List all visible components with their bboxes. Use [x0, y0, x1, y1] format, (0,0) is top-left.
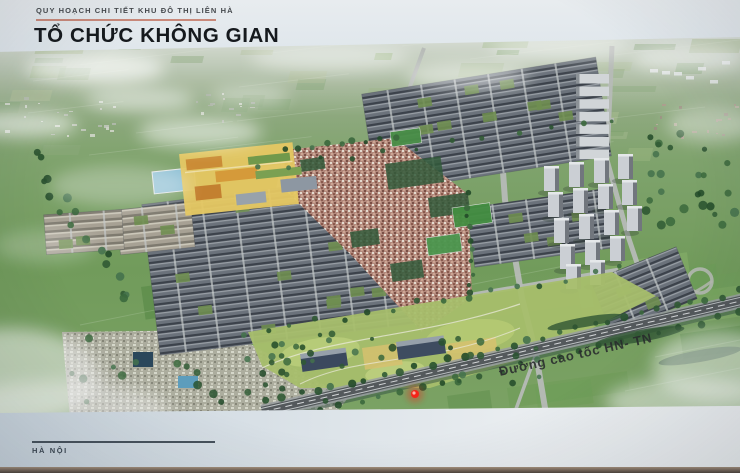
highrise-cluster-item — [576, 124, 580, 133]
distant-settlements-item — [250, 107, 255, 108]
highrise-cluster-item — [576, 137, 609, 147]
tree-scatter-item — [350, 156, 355, 161]
field-patchwork-item — [170, 56, 204, 63]
tree-scatter-item — [364, 140, 368, 144]
highrise-cluster-item — [590, 214, 594, 239]
tree-scatter-item — [477, 352, 484, 359]
tree-scatter-item — [45, 193, 53, 201]
tree-scatter-item — [193, 381, 202, 390]
highrise-cluster-item — [576, 74, 580, 84]
highrise-cluster-item — [576, 150, 580, 160]
highrise-cluster-item — [560, 244, 575, 247]
highrise-cluster-item — [604, 210, 619, 213]
tree-scatter-item — [450, 138, 455, 143]
tree-scatter-item — [549, 125, 553, 129]
highrise-cluster-item — [569, 162, 580, 187]
industrial-grid-item — [160, 225, 175, 235]
tree-scatter-item — [648, 170, 655, 177]
tree-scatter-item — [467, 283, 471, 287]
distant-settlements-item — [735, 106, 739, 108]
highrise-cluster-item — [555, 166, 559, 191]
industrial-grid — [116, 202, 195, 255]
cloud-haze-item — [25, 53, 165, 83]
tree-scatter-item — [724, 160, 730, 166]
cloud-haze-item — [633, 45, 740, 71]
tree-scatter-item — [72, 208, 79, 215]
highrise-cluster-item — [594, 158, 609, 161]
tree-scatter-item — [725, 190, 732, 197]
highrise-cluster-item — [621, 236, 625, 261]
tree-scatter-item — [307, 350, 314, 357]
district-west-grid-item — [277, 270, 292, 281]
distant-settlements-item — [662, 71, 670, 75]
tree-scatter-item — [364, 309, 370, 315]
tree-scatter-item — [448, 345, 453, 350]
tree-scatter-item — [495, 347, 500, 352]
tree-scatter-item — [312, 316, 318, 322]
tree-scatter-item — [310, 359, 315, 364]
tree-scatter-item — [653, 305, 659, 311]
tree-scatter-item — [318, 155, 322, 159]
distant-settlements-item — [686, 76, 694, 80]
highrise-cluster-item — [576, 112, 580, 122]
highrise-cluster-item — [576, 99, 609, 109]
distant-settlements-item — [660, 116, 662, 119]
tree-scatter-item — [714, 313, 721, 320]
highrise-cluster-item — [576, 137, 580, 147]
tree-scatter-item — [620, 313, 628, 321]
cloud-haze-item — [490, 36, 630, 60]
tree-scatter-item — [466, 190, 472, 196]
tree-scatter-item — [105, 251, 112, 258]
tree-scatter-item — [118, 371, 127, 380]
cloud-haze-item — [210, 86, 290, 106]
field-patchwork-item — [10, 90, 53, 101]
poster-title: TỔ CHỨC KHÔNG GIAN — [34, 24, 279, 48]
tree-scatter-item — [194, 369, 201, 376]
tree-scatter-item — [701, 172, 707, 178]
distant-settlements-item — [112, 123, 116, 125]
tree-scatter-item — [698, 321, 706, 329]
cloud-haze-item — [50, 166, 190, 206]
district-west-grid-item — [350, 286, 365, 297]
highrise-cluster-item — [609, 184, 613, 209]
cloud-haze-item — [406, 63, 530, 89]
distant-settlements-item — [25, 105, 27, 108]
highrise-cluster-item — [590, 260, 605, 263]
location-label: HÀ NỘI — [32, 446, 215, 455]
tree-scatter-item — [512, 352, 519, 359]
field-patchwork-item — [41, 145, 80, 155]
highrise-cluster-item — [576, 150, 609, 160]
tree-scatter-item — [378, 355, 384, 361]
tree-scatter-item — [658, 188, 665, 195]
distant-settlements-item — [196, 101, 198, 103]
tree-scatter-item — [537, 375, 542, 380]
tree-scatter-item — [468, 238, 474, 244]
masterplan-svg: Đường cao tốc HN- TN — [0, 36, 740, 413]
tree-scatter-item — [411, 363, 417, 369]
tree-scatter-item — [687, 299, 693, 305]
highrise-cluster-item — [554, 218, 565, 243]
tree-scatter-item — [360, 400, 365, 405]
tree-scatter-item — [455, 336, 461, 342]
highrise-cluster-item — [548, 192, 559, 217]
distant-settlements-item — [710, 80, 718, 84]
highrise-cluster-item — [544, 166, 555, 191]
highrise-cluster-item — [579, 214, 590, 239]
distant-settlements-item — [229, 108, 234, 110]
tree-scatter-item — [465, 214, 469, 218]
tree-scatter-item — [327, 383, 334, 390]
tree-scatter-item — [262, 397, 269, 404]
tree-scatter-item — [414, 298, 420, 304]
tree-scatter-item — [668, 145, 674, 151]
tree-scatter-item — [564, 280, 568, 284]
tree-scatter-item — [674, 302, 681, 309]
tree-scatter-item — [301, 360, 306, 365]
tree-scatter-item — [38, 154, 45, 161]
highrise-cluster-item — [576, 74, 609, 84]
tree-scatter-item — [277, 393, 285, 401]
tree-scatter-item — [467, 224, 473, 230]
highrise-cluster-item — [618, 154, 633, 157]
highrise-cluster-item — [576, 99, 580, 109]
tree-scatter-item — [470, 247, 475, 252]
highrise-cluster-item — [565, 218, 569, 243]
highrise-cluster-item — [629, 154, 633, 179]
tree-scatter-item — [536, 283, 542, 289]
highrise-cluster-item — [559, 192, 563, 217]
industrial-grid-item — [134, 215, 149, 225]
tree-scatter-item — [469, 259, 473, 263]
tree-scatter-item — [396, 389, 403, 396]
tree-scatter-item — [440, 380, 446, 386]
tree-scatter-item — [471, 273, 475, 277]
poster-photo: QUY HOẠCH CHI TIẾT KHU ĐÔ THỊ LIÊN HÀ TỔ… — [0, 0, 740, 473]
tree-scatter-item — [718, 221, 726, 229]
tree-scatter-item — [467, 352, 474, 359]
tree-scatter-item — [719, 295, 726, 302]
distant-settlements-item — [69, 111, 73, 112]
tree-scatter-item — [329, 331, 336, 338]
tree-scatter-item — [116, 272, 125, 281]
tree-scatter-item — [429, 362, 437, 370]
highrise-cluster-item — [579, 214, 594, 217]
tree-scatter-item — [241, 332, 247, 338]
tree-scatter-item — [389, 344, 397, 352]
tree-scatter-item — [380, 148, 385, 153]
distant-settlements-item — [236, 114, 241, 116]
tree-scatter-item — [111, 365, 116, 370]
district-west-grid-item — [198, 305, 213, 316]
tree-scatter-item — [286, 165, 291, 170]
tree-scatter-item — [476, 373, 482, 379]
tree-scatter-item — [323, 398, 329, 404]
poster-header: QUY HOẠCH CHI TIẾT KHU ĐÔ THỊ LIÊN HÀ TỔ… — [36, 6, 279, 48]
tree-scatter-item — [342, 318, 347, 323]
highrise-cluster-item — [615, 210, 619, 235]
tree-scatter-item — [324, 140, 330, 146]
tree-scatter-item — [377, 136, 382, 141]
distant-settlements-item — [64, 114, 68, 116]
highrise-cluster-item — [605, 158, 609, 183]
tree-scatter-item — [479, 136, 484, 141]
tree-scatter-item — [666, 217, 675, 226]
tree-scatter-item — [702, 147, 707, 152]
highrise-cluster-item — [598, 184, 609, 209]
tree-scatter-item — [464, 205, 470, 211]
tree-scatter-item — [326, 337, 332, 343]
highrise-cluster-item — [573, 188, 588, 191]
distant-settlements-item — [90, 134, 95, 137]
tree-scatter-item — [698, 190, 705, 197]
tree-scatter-item — [284, 372, 289, 377]
tree-scatter-item — [279, 341, 285, 347]
tree-scatter-item — [593, 269, 598, 274]
distant-settlements-item — [104, 125, 109, 128]
tree-scatter-item — [393, 134, 399, 140]
tree-scatter-item — [488, 287, 493, 292]
tree-scatter-item — [415, 148, 419, 152]
tree-scatter-item — [370, 337, 374, 341]
tree-scatter-item — [209, 390, 218, 399]
tree-scatter-item — [511, 343, 518, 350]
highrise-cluster-item — [544, 166, 559, 169]
tree-scatter-item — [477, 338, 485, 346]
tree-scatter-item — [712, 212, 717, 217]
highrise-cluster-item — [580, 162, 584, 187]
distant-settlements-item — [110, 130, 114, 132]
tree-scatter-item — [653, 151, 660, 158]
highrise-cluster-item — [573, 188, 584, 213]
tree-scatter-item — [102, 260, 110, 268]
highrise-cluster-item — [610, 236, 625, 239]
tree-scatter-item — [269, 360, 275, 366]
tree-scatter-item — [266, 328, 271, 333]
tree-scatter-item — [340, 141, 345, 146]
tree-scatter-item — [679, 204, 688, 213]
tree-scatter-item — [382, 372, 388, 378]
cloud-haze-item — [85, 88, 195, 112]
tree-scatter-item — [444, 354, 452, 362]
distant-settlements-item — [201, 112, 204, 115]
laser-pointer-dot — [407, 386, 424, 403]
distant-settlements-item — [656, 124, 658, 125]
highrise-cluster-item — [576, 124, 609, 133]
highrise-cluster-item — [622, 180, 633, 205]
tree-scatter-item — [540, 337, 545, 342]
tree-scatter-item — [335, 402, 342, 409]
tree-scatter-item — [459, 371, 466, 378]
tree-scatter-item — [314, 387, 322, 395]
tree-scatter-item — [244, 389, 251, 396]
tree-scatter-item — [300, 344, 306, 350]
highrise-cluster-item — [584, 188, 588, 213]
distant-settlements-item — [674, 72, 682, 76]
tree-scatter-item — [352, 349, 359, 356]
tree-scatter-item — [173, 360, 181, 368]
distant-settlements-item — [67, 135, 69, 137]
tree-scatter-item — [283, 146, 289, 152]
distant-settlements-item — [650, 69, 658, 73]
tree-scatter-item — [452, 374, 459, 381]
tree-scatter-item — [255, 164, 260, 169]
tree-scatter-item — [441, 298, 447, 304]
tree-scatter-item — [279, 386, 285, 392]
distant-settlements-item — [57, 112, 59, 113]
tree-scatter-item — [617, 264, 622, 269]
distant-settlements-item — [5, 103, 10, 105]
highrise-cluster-item — [638, 206, 642, 231]
tree-scatter-item — [646, 197, 653, 204]
tree-scatter-item — [610, 120, 614, 124]
highrise-cluster-item — [554, 218, 569, 221]
distant-settlements-item — [38, 103, 40, 104]
field-patchwork-item — [608, 86, 656, 92]
tree-scatter-item — [706, 202, 714, 210]
tree-scatter-item — [57, 209, 63, 215]
district-west-grid-item — [326, 295, 341, 306]
tree-scatter-item — [657, 221, 666, 230]
tree-scatter-item — [184, 363, 190, 369]
highrise-cluster-item — [633, 180, 637, 205]
distant-settlements-item — [662, 104, 666, 106]
poster-footer: HÀ NỘI — [32, 441, 215, 455]
tree-scatter-item — [581, 120, 587, 126]
distant-settlements-item — [654, 127, 657, 130]
distant-settlements-item — [208, 105, 213, 106]
tree-scatter-item — [348, 137, 355, 144]
highrise-cluster-item — [604, 210, 615, 235]
highrise-cluster-item — [627, 206, 642, 209]
tree-scatter-item — [657, 170, 665, 178]
tree-scatter-item — [396, 368, 404, 376]
tree-scatter-item — [268, 353, 275, 360]
tree-scatter-item — [263, 382, 268, 387]
highrise-cluster-item — [594, 158, 605, 183]
tree-scatter-item — [467, 290, 473, 296]
distant-settlements-item — [81, 129, 86, 131]
tree-scatter-item — [287, 324, 291, 328]
district-west-grid-item — [175, 273, 190, 284]
distant-settlements-item — [98, 125, 102, 127]
tree-scatter-item — [259, 370, 266, 377]
highrise-cluster-item — [610, 236, 621, 261]
school-campus-item-item — [195, 184, 222, 201]
tree-scatter-item — [533, 346, 538, 351]
tree-scatter-item — [41, 178, 47, 184]
tree-scatter-item — [457, 379, 461, 383]
tree-scatter-item — [517, 130, 522, 135]
distant-settlements-item — [210, 103, 215, 105]
tree-scatter-item — [293, 344, 299, 350]
distant-settlements-item — [24, 97, 29, 100]
highrise-cluster-item — [627, 206, 638, 231]
highrise-cluster-item — [576, 87, 609, 97]
tree-scatter-item — [642, 206, 651, 215]
footer-rule — [32, 441, 215, 443]
tree-scatter-item — [85, 334, 93, 342]
highrise-cluster-item — [576, 87, 580, 97]
tree-scatter-item — [295, 145, 301, 151]
tree-scatter-item — [361, 378, 367, 384]
tree-scatter-item — [730, 208, 739, 217]
tree-scatter-item — [698, 201, 707, 210]
highrise-cluster-item — [576, 112, 609, 122]
industrial-grid-item — [116, 202, 195, 255]
masterplan-rendering: Đường cao tốc HN- TN — [0, 36, 740, 413]
highrise-cluster-item — [569, 162, 584, 165]
tree-scatter-item — [391, 309, 396, 314]
highrise-cluster-item — [598, 184, 613, 187]
tree-scatter-item — [656, 142, 662, 148]
plan-subtitle: QUY HOẠCH CHI TIẾT KHU ĐÔ THỊ LIÊN HÀ — [36, 6, 279, 15]
poster-table-edge — [0, 467, 740, 473]
tree-scatter-item — [67, 222, 74, 229]
distant-settlements-item — [734, 104, 736, 106]
tree-scatter-item — [271, 341, 278, 348]
tree-scatter-item — [299, 389, 305, 395]
tree-scatter-item — [244, 356, 250, 362]
tree-scatter-item — [514, 284, 520, 290]
cloud-haze-item — [250, 45, 410, 71]
highrise-cluster-item — [585, 240, 600, 243]
tree-scatter-item — [310, 145, 315, 150]
tree-scatter-item — [509, 380, 516, 387]
cloud-haze-item — [138, 117, 262, 147]
tree-scatter-item — [133, 359, 139, 365]
tree-scatter-item — [98, 247, 106, 255]
tree-scatter-item — [218, 399, 224, 405]
tree-scatter-item — [318, 333, 322, 337]
tree-scatter-item — [376, 394, 381, 399]
tree-scatter-item — [701, 297, 708, 304]
distant-settlements-item — [240, 106, 242, 107]
tree-scatter-item — [466, 295, 473, 302]
highrise-cluster-item — [548, 192, 563, 195]
tree-scatter-item — [438, 338, 446, 346]
tree-scatter-item — [339, 364, 344, 369]
highrise-cluster-item — [618, 154, 629, 179]
accent-line — [36, 19, 216, 21]
tree-scatter-item — [647, 134, 653, 140]
tree-scatter-item — [279, 353, 285, 359]
tree-scatter-item — [120, 294, 128, 302]
distant-settlements-item — [679, 106, 682, 109]
tree-scatter-item — [283, 358, 291, 366]
highrise-cluster-item — [566, 264, 581, 267]
tree-scatter-item — [639, 310, 644, 315]
tree-scatter-item — [523, 336, 531, 344]
highrise-cluster-item — [622, 180, 637, 183]
tree-scatter-item — [348, 380, 356, 388]
